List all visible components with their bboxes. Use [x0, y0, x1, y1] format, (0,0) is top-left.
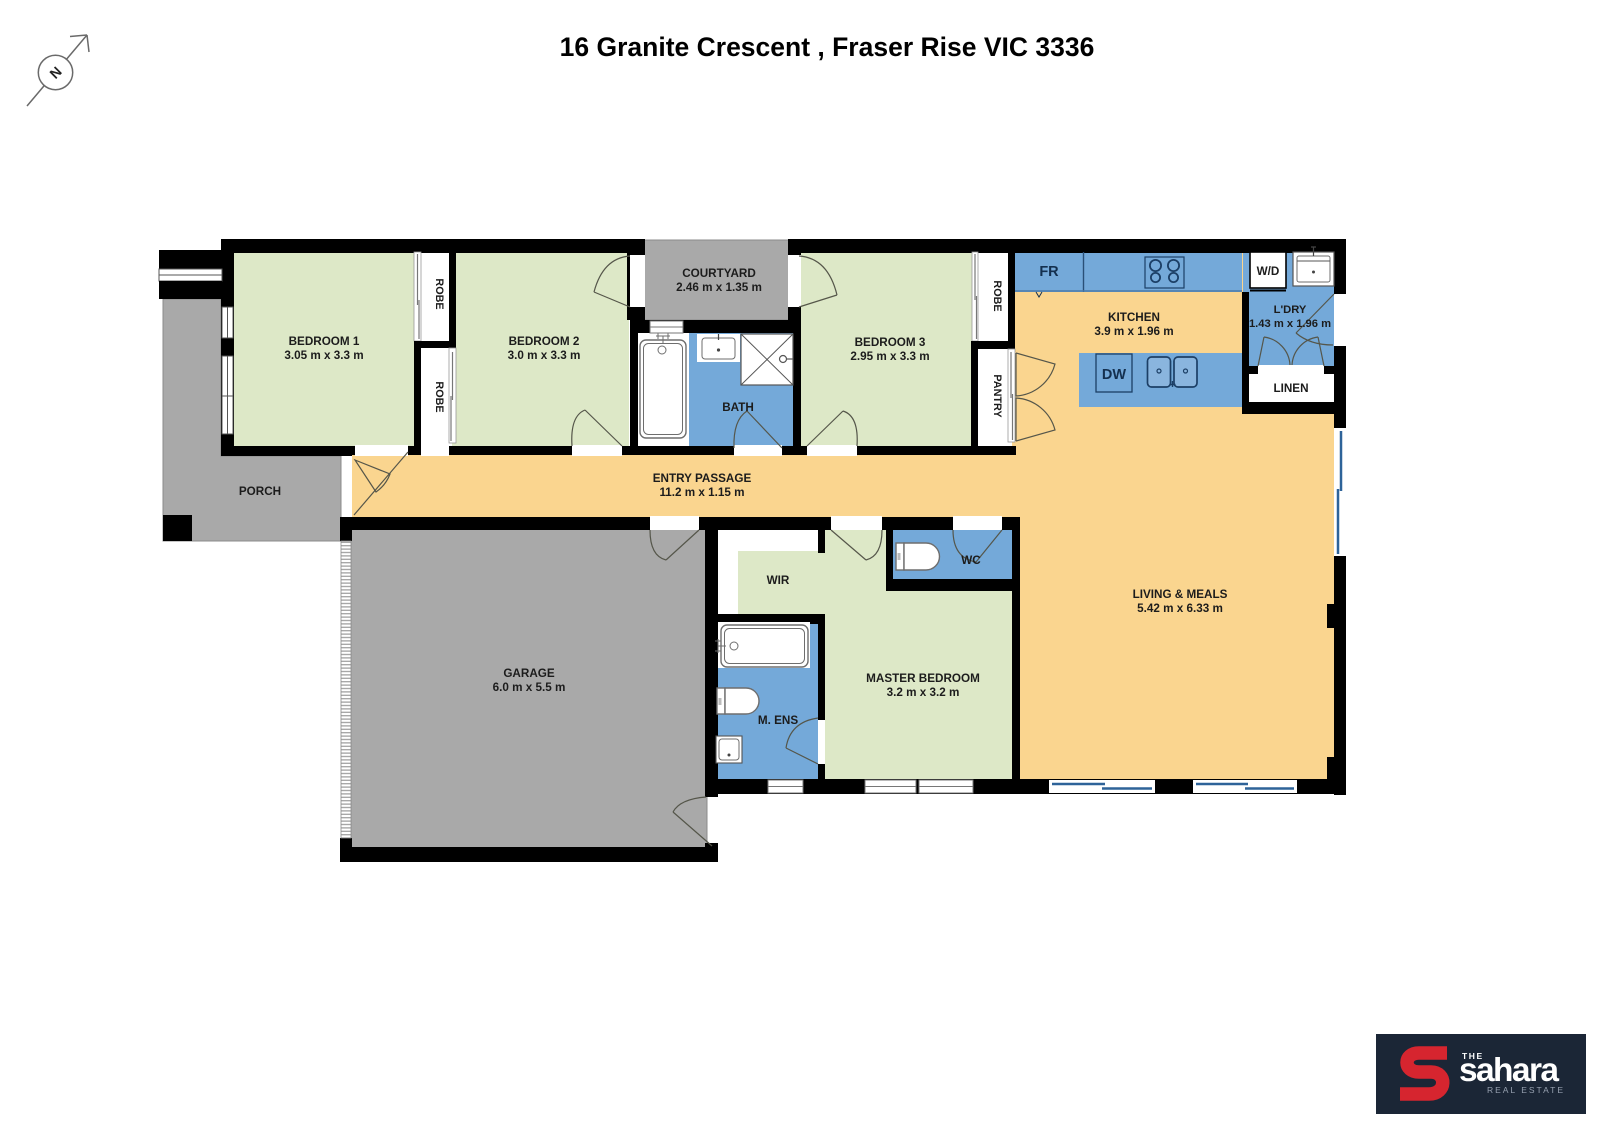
- svg-text:GARAGE: GARAGE: [503, 667, 555, 680]
- svg-text:FR: FR: [1039, 264, 1059, 280]
- svg-text:3.2 m x 3.2 m: 3.2 m x 3.2 m: [887, 686, 960, 699]
- svg-text:3.9 m x 1.96 m: 3.9 m x 1.96 m: [1094, 325, 1173, 338]
- svg-text:ROBE: ROBE: [991, 280, 1003, 311]
- svg-text:5.42 m x 6.33 m: 5.42 m x 6.33 m: [1137, 602, 1223, 615]
- svg-text:3.05 m x 3.3 m: 3.05 m x 3.3 m: [284, 349, 363, 362]
- svg-text:PORCH: PORCH: [239, 485, 281, 498]
- svg-text:MASTER BEDROOM: MASTER BEDROOM: [866, 672, 980, 685]
- svg-text:11.2 m x 1.15 m: 11.2 m x 1.15 m: [659, 486, 744, 499]
- svg-text:2.46 m x 1.35 m: 2.46 m x 1.35 m: [676, 281, 762, 294]
- svg-text:6.0 m x 5.5 m: 6.0 m x 5.5 m: [493, 681, 566, 694]
- svg-text:3.0 m x 3.3 m: 3.0 m x 3.3 m: [508, 349, 581, 362]
- svg-text:DW: DW: [1102, 367, 1126, 383]
- svg-text:ENTRY PASSAGE: ENTRY PASSAGE: [653, 472, 752, 485]
- svg-text:M. ENS: M. ENS: [758, 714, 798, 727]
- svg-text:BEDROOM 2: BEDROOM 2: [509, 335, 580, 348]
- svg-text:16 Granite Crescent , Fraser R: 16 Granite Crescent , Fraser Rise VIC 33…: [560, 32, 1095, 62]
- svg-text:W/D: W/D: [1257, 265, 1280, 278]
- svg-text:BEDROOM 1: BEDROOM 1: [289, 335, 360, 348]
- svg-text:WC: WC: [961, 554, 981, 567]
- svg-text:LINEN: LINEN: [1273, 382, 1308, 395]
- svg-text:2.95 m x 3.3 m: 2.95 m x 3.3 m: [850, 350, 929, 363]
- svg-text:BATH: BATH: [722, 401, 754, 414]
- svg-text:WIR: WIR: [767, 574, 790, 587]
- svg-text:sahara: sahara: [1459, 1052, 1559, 1089]
- svg-text:PANTRY: PANTRY: [991, 374, 1003, 418]
- svg-text:COURTYARD: COURTYARD: [682, 267, 756, 280]
- svg-text:LIVING & MEALS: LIVING & MEALS: [1133, 588, 1228, 601]
- svg-text:REAL ESTATE: REAL ESTATE: [1487, 1085, 1565, 1095]
- svg-text:ROBE: ROBE: [433, 381, 445, 412]
- svg-text:ROBE: ROBE: [433, 278, 445, 309]
- svg-text:BEDROOM 3: BEDROOM 3: [855, 336, 926, 349]
- svg-text:1.43 m x 1.96 m: 1.43 m x 1.96 m: [1249, 318, 1331, 330]
- svg-text:L'DRY: L'DRY: [1274, 304, 1307, 316]
- svg-text:KITCHEN: KITCHEN: [1108, 311, 1160, 324]
